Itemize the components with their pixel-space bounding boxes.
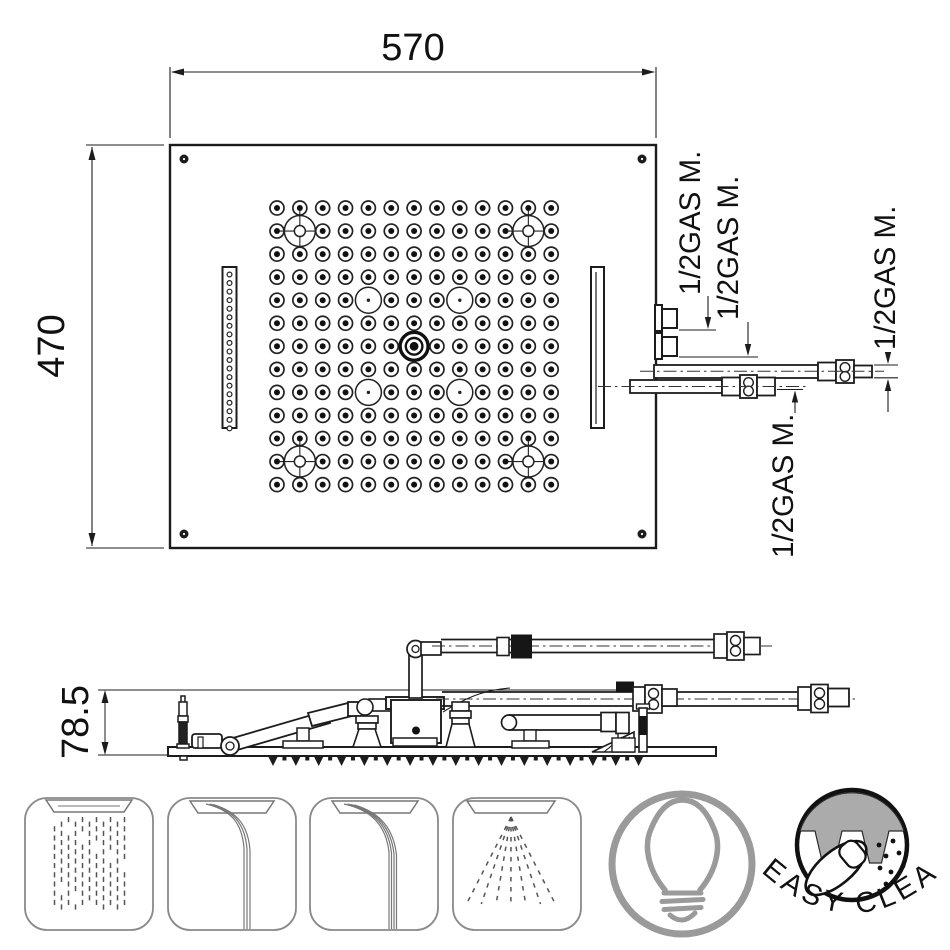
arrow-up-icon xyxy=(89,147,96,160)
arrow-right-icon xyxy=(642,69,655,76)
dimension-width xyxy=(170,67,656,138)
mist-spray-function-icon xyxy=(453,798,581,930)
dimension-depth-value: 78.5 xyxy=(55,685,97,759)
waterfall-single-function-icon xyxy=(168,798,296,930)
nozzle-teeth xyxy=(269,757,644,766)
arrow-up-icon xyxy=(102,690,109,703)
inlet-stubs xyxy=(655,305,677,359)
dimension-width-value: 570 xyxy=(381,27,444,69)
light-bulb-icon xyxy=(647,800,717,890)
inlet-stub-1 xyxy=(655,305,662,331)
rain-function-icon xyxy=(25,798,153,930)
gas-thread-label-3: 1/2GAS M. xyxy=(869,206,902,350)
shower-head-technical-drawing: 570 470 xyxy=(0,0,950,950)
valve-block xyxy=(386,641,444,747)
side-view: 78.5 xyxy=(55,632,856,766)
inlet-stub-1-body xyxy=(662,309,677,328)
light-function-icon xyxy=(612,794,752,934)
top-view: 570 470 xyxy=(31,27,902,558)
technical-drawing-page: 570 470 xyxy=(0,0,950,950)
arrow-down-icon xyxy=(89,533,96,546)
dimension-height xyxy=(86,145,164,548)
shower-head-profile xyxy=(190,801,274,813)
shower-head-profile xyxy=(332,801,418,813)
shower-head-profile xyxy=(467,801,555,813)
waterfall-slot xyxy=(591,267,604,428)
spray-bar-slot xyxy=(223,267,237,431)
dimension-height-value: 470 xyxy=(31,314,73,377)
gas-thread-label-1: 1/2GAS M. xyxy=(674,151,707,295)
arrow-left-icon xyxy=(171,69,184,76)
waterfall-triple-function-icon xyxy=(310,798,438,930)
gas-thread-label-4: 1/2GAS M. xyxy=(767,414,800,558)
gas-thread-label-2: 1/2GAS M. xyxy=(712,176,745,320)
arrow-down-icon xyxy=(102,742,109,755)
inlet-stub-2-body xyxy=(662,337,677,356)
flex-hose-upper xyxy=(432,632,772,660)
inlet-stub-2 xyxy=(655,333,662,359)
